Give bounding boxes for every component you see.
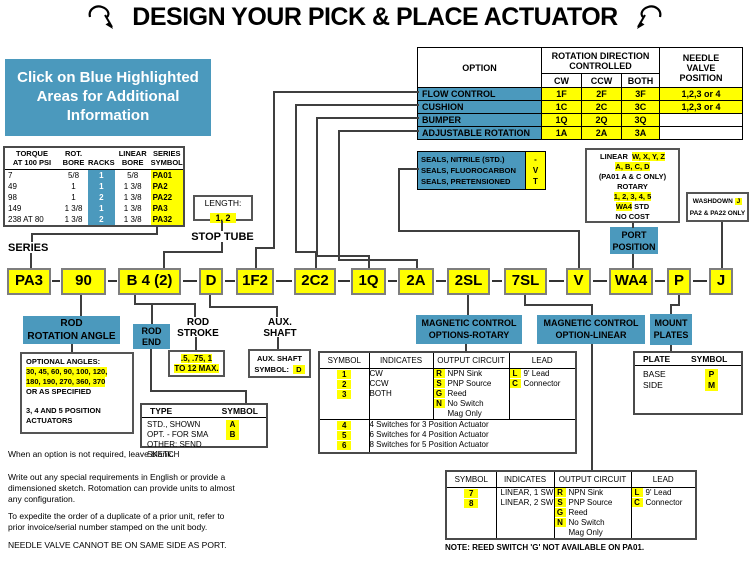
col-rot-bore: ROT. BORE [59,147,88,170]
code-cell: 1C [542,101,582,114]
code-dash [436,280,446,282]
col-cw: CW [542,74,582,88]
washdown-label: WASHDOWN [693,198,733,205]
code-segment-aux-shaft: D [199,268,223,295]
racks-cell[interactable]: 1 [88,203,115,214]
code-cell: 3F [622,88,660,101]
switch-note: 4 Switches for 3 Position Actuator [370,420,576,430]
port-position-label[interactable]: PORT POSITION [610,227,658,254]
connector-line [338,130,419,132]
col-racks: RACKS [88,147,115,170]
connector-line [221,221,223,231]
connector-line [31,233,158,235]
connector-line [398,230,580,232]
connector-line [273,91,275,249]
output-code: S [555,498,566,507]
mount-plates-table: PLATE SYMBOL BASE P SIDE M [633,351,743,415]
connector-line [80,295,82,316]
output-code: R [555,488,566,497]
output-code: N [555,518,566,527]
output-code: R [434,369,445,378]
code-dash [655,280,665,282]
connector-line [591,344,593,470]
torque-cell: 149 [4,203,59,214]
connector-line [670,304,672,314]
rod-end-type: STD., SHOWN [147,420,226,430]
angles-positions-note: 3, 4 AND 5 POSITION ACTUATORS [26,406,132,426]
connector-line [276,306,278,317]
torque-cell: 49 [4,181,59,192]
needle-valve-cell: 1,2,3 or 4 [660,101,743,114]
code-cell: 1Q [542,114,582,127]
col-rotation-direction: ROTATION DIRECTION CONTROLLED [542,48,660,74]
indicates-value: BOTH [370,389,433,399]
connector-line [71,344,73,352]
connector-line [398,168,419,170]
series-table: TORQUE AT 100 PSI ROT. BORE RACKS LINEAR… [3,146,185,227]
connector-line [338,259,418,261]
connector-line [277,337,279,349]
rot-bore-cell: 1 3/8 [59,203,88,214]
connector-line [245,390,247,403]
connector-line [195,337,197,350]
stroke-value: .5, .75, 1 [181,354,212,363]
code-cell: 2C [582,101,622,114]
plate-type: SIDE [635,380,691,391]
plate-type: BASE [635,369,691,380]
info-box: Click on Blue Highlighted Areas for Addi… [5,59,211,136]
col-symbol: SYMBOL [691,354,727,364]
connector-line [316,255,370,257]
connector-line [632,254,634,268]
code-dash [388,280,397,282]
code-cell: 1A [542,127,582,140]
lead-code: L [632,488,643,497]
connector-line [338,130,340,261]
rotary-codes: 1, 2, 3, 4, 5 [614,192,652,201]
curved-arrow-icon [634,4,664,31]
lead-code: L [510,369,521,378]
linear-label: LINEAR [600,152,628,161]
connector-line [316,117,419,119]
code-dash [52,280,60,282]
symbol-code: 7 [464,489,478,498]
footnote: Write out any special requirements in En… [8,472,235,505]
code-dash [183,280,197,282]
rod-end-symbol [226,440,239,460]
code-segment-magnetic-rotary: 2SL [447,268,490,295]
connector-line [670,345,672,351]
code-dash [549,280,564,282]
rotation-options-table: OPTION ROTATION DIRECTION CONTROLLED NEE… [417,47,743,140]
footnote: To expedite the order of a duplicate of … [8,511,224,533]
col-symbol: SYMBOL [319,352,369,369]
col-output-circuit: OUTPUT CIRCUIT [433,352,509,369]
code-dash [492,280,502,282]
symbol-code: 8 [464,499,478,508]
indicates-value: LINEAR, 1 SW [501,488,554,498]
connector-line [134,303,196,305]
series-symbol-cell: PA3 [151,203,184,214]
option-adjustable-rotation[interactable]: ADJUSTABLE ROTATION [418,127,542,140]
aux-box-title: AUX. SHAFT [250,353,309,364]
torque-cell: 238 AT 80 [4,214,59,226]
seal-option: SEALS, NITRILE (STD.) [421,154,525,165]
col-needle-valve: NEEDLE VALVE POSITION [660,48,743,88]
lead-desc: Connector [524,379,561,388]
col-torque: TORQUE AT 100 PSI [4,147,59,170]
output-code: G [434,389,445,398]
racks-cell[interactable]: 2 [88,192,115,203]
needle-valve-cell [660,127,743,140]
connector-line [465,344,467,351]
code-segment-port-position: WA4 [609,268,653,295]
code-cell: 1F [542,88,582,101]
rod-end-type-table: TYPE SYMBOL STD., SHOWN A OPT. - FOR SMA… [140,403,268,448]
symbol-code: 2 [337,380,351,389]
code-segment-cushion: 2C2 [294,268,336,295]
code-dash [693,280,707,282]
rod-end-type: OPT. - FOR SMA [147,430,226,440]
switch-note: 6 Switches for 4 Position Actuator [370,430,576,440]
connector-line [150,390,247,392]
indicates-value: CW [370,369,433,379]
washdown-note: PA2 & PA22 ONLY [688,208,747,220]
output-code: G [555,508,566,517]
magnetic-rotary-table: SYMBOL INDICATES OUTPUT CIRCUIT LEAD 1 2… [318,351,577,454]
connector-line [194,303,196,317]
output-desc: No Switch [569,518,605,527]
lead-desc: Connector [646,498,683,507]
connector-line [398,168,400,232]
connector-line [273,91,419,93]
pick-place-actuator-diagram: DESIGN YOUR PICK & PLACE ACTUATOR Click … [0,0,750,567]
angles-values: 30, 45, 60, 90, 100, 120, [26,367,107,377]
connector-line [295,104,297,253]
symbol-code: 3 [337,390,351,399]
code-segment-mount-plate: P [667,268,691,295]
series-symbol-cell: PA22 [151,192,184,203]
code-dash [108,280,117,282]
connector-line [163,251,165,268]
connector-line [295,104,419,106]
rod-rotation-angle-label[interactable]: ROD ROTATION ANGLE [23,316,120,344]
code-dash [338,280,350,282]
rot-bore-cell: 1 [59,181,88,192]
linear-codes: A, B, C, D [615,162,649,171]
stroke-value: TO 12 MAX. [174,364,218,373]
connector-line [578,230,580,268]
reed-switch-note: NOTE: REED SWITCH 'G' NOT AVAILABLE ON P… [445,543,644,552]
col-lead: LEAD [509,352,576,369]
needle-valve-cell: 1,2,3 or 4 [660,88,743,101]
seal-symbol: V [526,165,545,176]
type-header: TYPE [150,406,172,416]
footnote: NEEDLE VALVE CANNOT BE ON SAME SIDE AS P… [8,540,227,551]
curved-arrow-icon [86,4,116,31]
linear-bore-cell: 5/8 [115,170,151,182]
indicates-value: LINEAR, 2 SW [501,498,554,508]
output-desc: PNP Source [569,498,613,507]
angles-note: OR AS SPECIFIED [26,387,132,397]
washdown-symbol: J [735,198,743,205]
seals-options-box[interactable]: SEALS, NITRILE (STD.) SEALS, FLUOROCARBO… [417,151,546,190]
code-segment-washdown: J [709,268,733,295]
code-cell: 2Q [582,114,622,127]
output-desc: NPN Sink [569,488,604,497]
magnetic-linear-table: SYMBOL INDICATES OUTPUT CIRCUIT LEAD 7 8… [445,470,697,540]
lead-code: C [510,379,521,388]
racks-cell[interactable]: 1 [88,181,115,192]
series-label: SERIES [8,242,48,254]
code-segment-bumper: 1Q [351,268,386,295]
symbol-header: SYMBOL [222,406,258,416]
col-indicates: INDICATES [369,352,433,369]
std-code: WA4 [616,202,632,211]
rot-bore-cell: 1 3/8 [59,214,88,226]
title-row: DESIGN YOUR PICK & PLACE ACTUATOR [0,3,750,32]
port-position-options-box: LINEAR W, X, Y, Z A, B, C, D (PA01 A & C… [585,148,680,223]
connector-line [591,304,593,315]
racks-cell[interactable]: 1 [88,170,115,182]
col-both: BOTH [622,74,660,88]
std-label: STD [634,202,649,211]
torque-cell: 7 [4,170,59,182]
linear-bore-cell: 1 3/8 [115,192,151,203]
output-desc: PNP Source [448,379,492,388]
output-desc: Reed [448,389,467,398]
output-desc: Mag Only [448,409,482,418]
connector-line [524,304,593,306]
magnetic-rotary-label[interactable]: MAGNETIC CONTROL OPTIONS-ROTARY [416,315,522,344]
seal-symbol: - [526,154,545,165]
code-cell: 2F [582,88,622,101]
symbol-code: 5 [337,431,351,440]
aux-symbol-label: SYMBOL: [254,365,289,374]
code-dash [276,280,292,282]
no-cost-note: NO COST [587,212,678,222]
connector-line [368,255,370,268]
connector-line [295,251,317,253]
output-desc: No Switch [448,399,484,408]
plate-symbol: P [705,369,718,380]
symbol-code: 4 [337,421,351,430]
option-bumper[interactable]: BUMPER [418,114,542,127]
connector-line [255,247,275,249]
code-segment-rod-end-stroke: B 4 (2) [118,268,181,295]
connector-line [467,295,469,315]
linear-bore-cell: 1 3/8 [115,181,151,192]
col-indicates: INDICATES [496,471,554,488]
series-symbol-cell: PA32 [151,214,184,226]
rotary-label: ROTARY [587,182,678,192]
col-plate: PLATE [635,354,691,364]
connector-line [30,253,32,268]
rod-stroke-label: ROD STROKE [168,317,228,339]
rot-bore-cell: 1 [59,192,88,203]
col-series-symbol: SERIES SYMBOL [151,147,184,170]
col-option: OPTION [418,48,542,88]
lead-desc: 9' Lead [646,488,672,497]
linear-bore-cell: 1 3/8 [115,214,151,226]
col-output-circuit: OUTPUT CIRCUIT [554,471,631,488]
lead-code: C [632,498,643,507]
needle-valve-cell [660,114,743,127]
code-segment-adjustable-rotation: 2A [398,268,434,295]
aux-symbol-value: D [293,365,304,374]
series-symbol-cell: PA01 [151,170,184,182]
washdown-box: WASHDOWN J PA2 & PA22 ONLY [686,192,749,222]
angles-values: 180, 190, 270, 360, 370 [26,377,105,387]
output-code: N [434,399,445,408]
output-code: S [434,379,445,388]
connector-line [632,223,634,228]
connector-line [416,259,418,268]
rod-end-symbol: B [226,430,239,440]
connector-line [721,222,723,268]
rod-end-label[interactable]: ROD END [133,324,170,349]
code-dash [593,280,607,282]
option-cushion[interactable]: CUSHION [418,101,542,114]
connector-line [255,247,257,268]
output-desc: Mag Only [569,528,603,537]
racks-cell[interactable]: 2 [88,214,115,226]
code-cell: 2A [582,127,622,140]
code-segment-rotation-angle: 90 [61,268,106,295]
connector-line [31,233,33,242]
page-title: DESIGN YOUR PICK & PLACE ACTUATOR [132,3,617,32]
torque-cell: 98 [4,192,59,203]
code-segment-series: PA3 [7,268,51,295]
aux-shaft-label: AUX. SHAFT [250,317,310,339]
connector-line [209,306,278,308]
col-ccw: CCW [582,74,622,88]
linear-bore-cell: 1 3/8 [115,203,151,214]
plate-symbol: M [705,380,718,391]
length-label: LENGTH: [195,197,251,208]
connector-line [150,349,152,392]
angles-title: OPTIONAL ANGLES: [26,357,132,367]
connector-line [316,117,318,257]
symbol-code: 6 [337,441,351,450]
code-segment-seals: V [566,268,591,295]
col-symbol: SYMBOL [446,471,496,488]
pa01-note: (PA01 A & C ONLY) [587,172,678,182]
code-cell: 3Q [622,114,660,127]
output-desc: Reed [569,508,588,517]
output-desc: NPN Sink [448,369,483,378]
symbol-code: 1 [337,370,351,379]
switch-note: 8 Switches for 5 Position Actuator [370,440,576,450]
code-dash [225,280,235,282]
lead-desc: 9' Lead [524,369,550,378]
rod-end-symbol: A [226,420,239,430]
optional-angles-box: OPTIONAL ANGLES: 30, 45, 60, 90, 100, 12… [20,352,134,434]
code-segment-magnetic-linear: 7SL [504,268,547,295]
code-segment-flow-control: 1F2 [236,268,274,295]
mount-plates-label[interactable]: MOUNT PLATES [650,314,692,345]
col-lead: LEAD [631,471,696,488]
seal-option: SEALS, PRETENSIONED [421,176,525,187]
option-flow-control[interactable]: FLOW CONTROL [418,88,542,101]
code-cell: 3C [622,101,660,114]
indicates-value: CCW [370,379,433,389]
magnetic-linear-label[interactable]: MAGNETIC CONTROL OPTION-LINEAR [537,315,645,344]
connector-line [163,251,223,253]
series-symbol-cell: PA2 [151,181,184,192]
seal-symbols: - V T [525,152,545,189]
footnote: When an option is not required, leave bl… [8,449,174,460]
rot-bore-cell: 5/8 [59,170,88,182]
col-linear-bore: LINEAR BORE [115,147,151,170]
seal-option: SEALS, FLUOROCARBON [421,165,525,176]
linear-codes: W, X, Y, Z [632,152,665,161]
connector-line [151,303,153,324]
code-cell: 3A [622,127,660,140]
seal-symbol: T [526,176,545,187]
